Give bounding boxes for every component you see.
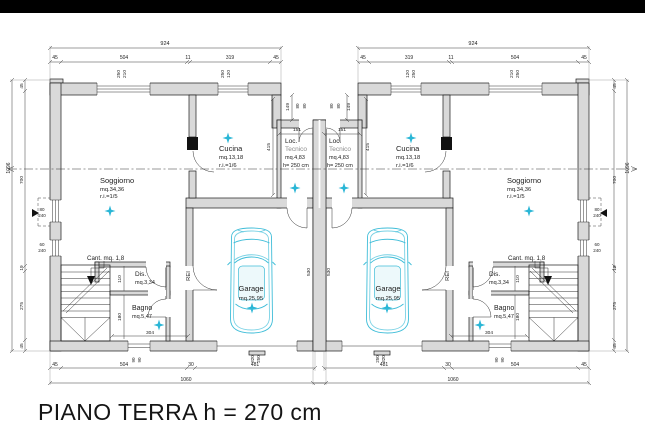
- dim-label: 504: [511, 362, 520, 368]
- room-label-soggiorno: Soggiorno: [100, 176, 134, 185]
- dim-label: r.i.=1/6: [219, 163, 237, 169]
- dim-label: 11: [185, 55, 190, 61]
- dim-label: 530: [306, 268, 312, 276]
- dim-label: 700: [19, 176, 25, 184]
- room-label-cucina: Cucina: [219, 144, 243, 153]
- dim-label: 120: [405, 70, 411, 78]
- dim-label: 924: [468, 41, 477, 47]
- dim-label: 80: [295, 103, 300, 109]
- dim-label: 90: [131, 357, 136, 363]
- dim-label: r.i.=1/5: [100, 194, 118, 200]
- dim-label: 250: [256, 355, 261, 363]
- dim-label: 45: [52, 55, 58, 61]
- dim-label: h= 250 cm: [327, 163, 353, 169]
- dim-label: mq.3,34: [489, 280, 509, 286]
- dim-label: 45: [581, 55, 587, 61]
- dim-label: 250: [220, 70, 226, 78]
- dim-label: 11: [448, 55, 453, 61]
- floor-plan-photo: 9249244550411319454531911504452502102501…: [0, 0, 645, 437]
- dim-label: 45: [612, 83, 618, 89]
- dim-label: 151: [293, 127, 301, 133]
- dim-label: 120: [226, 70, 232, 78]
- dim-label: 250: [515, 70, 521, 78]
- dim-label: 250: [411, 70, 417, 78]
- dim-label: 250: [375, 355, 380, 363]
- dim-label: 504: [511, 55, 520, 61]
- dim-label: 90: [500, 357, 505, 363]
- dim-label: 110: [515, 275, 521, 283]
- dim-label: 240: [38, 248, 46, 253]
- dim-label: 1096: [625, 162, 631, 173]
- dim-label: 151: [338, 127, 346, 133]
- floor-caption: PIANO TERRA h = 270 cm: [38, 399, 322, 426]
- dim-label: 240: [593, 213, 601, 218]
- dim-label: mq.34,36: [507, 187, 531, 193]
- letterbox-bar-top: [0, 0, 645, 13]
- dim-label: 180: [117, 313, 123, 321]
- dim-label: 45: [612, 343, 618, 349]
- dim-label: 1060: [180, 377, 191, 383]
- dim-label: 924: [160, 41, 169, 47]
- dim-label: 149: [285, 103, 291, 111]
- dim-label: 415: [266, 143, 272, 151]
- dim-label: 90: [137, 357, 142, 363]
- floor-plan-canvas: 9249244550411319454531911504452502102501…: [0, 0, 645, 437]
- room-label-bagno-b: Bagno: [494, 305, 514, 312]
- dim-label: 319: [226, 55, 235, 61]
- dim-label: 45: [52, 362, 58, 368]
- dim-label: 275: [19, 302, 25, 310]
- dim-label: mq.13,18: [396, 155, 420, 161]
- dim-label: 45: [360, 55, 366, 61]
- dim-label: 30: [188, 362, 194, 368]
- dim-label: mq.4,83: [329, 155, 349, 161]
- dim-label: mq.25,95: [239, 296, 263, 302]
- room-label-loc-tecnico-b: Loc.: [329, 138, 341, 145]
- dim-label: 700: [612, 176, 618, 184]
- dim-label: 60: [594, 242, 600, 247]
- room-label-garage: Garage: [238, 284, 263, 293]
- dim-label: 19: [19, 265, 25, 271]
- room-label-loc-tecnico: Loc.: [285, 138, 297, 145]
- dim-label: mq.4,83: [285, 155, 305, 161]
- dim-label: 60: [39, 242, 45, 247]
- dim-label: 1060: [447, 377, 458, 383]
- dim-label: h= 250 cm: [283, 163, 309, 169]
- dim-label: 80: [336, 103, 341, 109]
- dim-label: mq.5,47: [132, 314, 152, 320]
- dim-label: 210: [509, 70, 515, 78]
- dim-label: 80: [39, 207, 45, 212]
- dim-label: 320: [250, 355, 255, 363]
- dim-label: 275: [612, 302, 618, 310]
- dim-label: 250: [116, 70, 122, 78]
- dim-label: mq.34,36: [100, 187, 124, 193]
- dim-label: 80: [329, 103, 334, 109]
- dim-label: 304: [146, 330, 154, 336]
- dim-label: 149: [346, 103, 352, 111]
- rei-wall-label: REI: [186, 271, 192, 281]
- rei-wall-label-b: REI: [445, 271, 451, 281]
- dim-label: 90: [494, 357, 499, 363]
- room-label-soggiorno-b: Soggiorno: [507, 176, 541, 185]
- dim-label: r.i.=1/5: [507, 194, 525, 200]
- dim-label: 45: [273, 55, 279, 61]
- dim-label: 19: [612, 265, 618, 271]
- dim-label: r.i.=1/6: [396, 163, 414, 169]
- dim-label: 45: [19, 343, 25, 349]
- room-label-dis: Dis.: [135, 271, 146, 278]
- dim-label: 304: [485, 330, 493, 336]
- dim-label: 1096: [6, 162, 12, 173]
- dim-label: Tecnico: [329, 146, 351, 153]
- dim-label: 110: [117, 275, 123, 283]
- dim-label: Tecnico: [285, 146, 307, 153]
- dim-label: 504: [120, 362, 129, 368]
- room-label-bagno: Bagno: [132, 305, 152, 312]
- dim-label: 80: [302, 103, 307, 109]
- dim-label: 45: [19, 83, 25, 89]
- dim-label: 320: [381, 355, 386, 363]
- dim-label: 30: [445, 362, 451, 368]
- room-label-cantina: Cant. mq. 1,8: [87, 255, 125, 262]
- dim-label: 45: [581, 362, 587, 368]
- dim-label: 415: [365, 143, 371, 151]
- room-label-cucina-b: Cucina: [396, 144, 420, 153]
- dim-label: 240: [593, 248, 601, 253]
- room-label-cantina-b: Cant. mq. 1,8: [508, 255, 546, 262]
- dim-label: mq.5,47: [494, 314, 514, 320]
- room-label-dis-b: Dis.: [489, 271, 500, 278]
- dim-label: mq.25,95: [376, 296, 400, 302]
- dim-label: 180: [515, 313, 521, 321]
- dim-label: 504: [120, 55, 129, 61]
- dim-label: 210: [122, 70, 128, 78]
- dim-label: 319: [405, 55, 414, 61]
- dim-label: 240: [38, 213, 46, 218]
- dim-label: 80: [594, 207, 600, 212]
- dim-label: mq.13,18: [219, 155, 243, 161]
- room-label-garage-b: Garage: [375, 284, 400, 293]
- dim-label: 530: [326, 268, 332, 276]
- dim-label: mq.3,34: [135, 280, 155, 286]
